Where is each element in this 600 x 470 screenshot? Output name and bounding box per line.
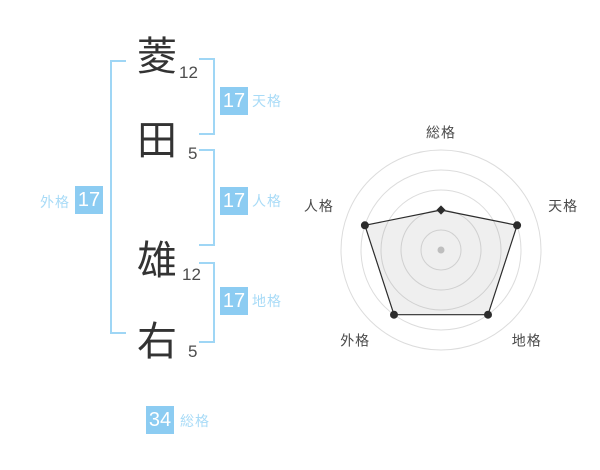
tenkaku-bracket xyxy=(199,58,215,135)
radar-data-point xyxy=(390,311,398,319)
gaikaku-bracket xyxy=(110,60,126,334)
stroke-count-2: 5 xyxy=(188,145,197,162)
name-char-2: 田 xyxy=(117,120,197,162)
gaikaku-badge: 17 xyxy=(75,186,103,214)
radar-data-point xyxy=(513,221,521,229)
name-char-4: 右 xyxy=(117,321,197,363)
radar-data-point xyxy=(361,221,369,229)
jinkaku-bracket xyxy=(199,149,215,246)
gaikaku-label: 外格 xyxy=(38,195,70,209)
tenkaku-label: 天格 xyxy=(252,94,282,108)
jinkaku-badge: 17 xyxy=(220,187,248,215)
radar-data-point xyxy=(484,311,492,319)
stroke-count-4: 5 xyxy=(188,343,197,360)
radar-polygon xyxy=(365,210,517,315)
chikaku-bracket xyxy=(199,262,215,343)
radar-axis-label: 外格 xyxy=(340,333,370,349)
tenkaku-badge: 17 xyxy=(220,87,248,115)
soukaku-badge: 34 xyxy=(146,406,174,434)
chikaku-label: 地格 xyxy=(252,294,282,308)
radar-axis-label: 総格 xyxy=(426,125,456,141)
jinkaku-label: 人格 xyxy=(252,194,282,208)
radar-axis-label: 地格 xyxy=(512,333,542,349)
fortune-radar-chart: 総格天格地格外格人格 xyxy=(300,100,600,400)
name-analysis-panel: 菱 田 雄 右 12 5 12 5 17 天格 17 人格 17 地格 外格 1… xyxy=(0,0,600,470)
radar-axis-label: 天格 xyxy=(548,198,578,214)
radar-axis-label: 人格 xyxy=(304,198,334,214)
chikaku-badge: 17 xyxy=(220,287,248,315)
stroke-count-1: 12 xyxy=(179,64,198,81)
soukaku-label: 総格 xyxy=(180,414,210,428)
